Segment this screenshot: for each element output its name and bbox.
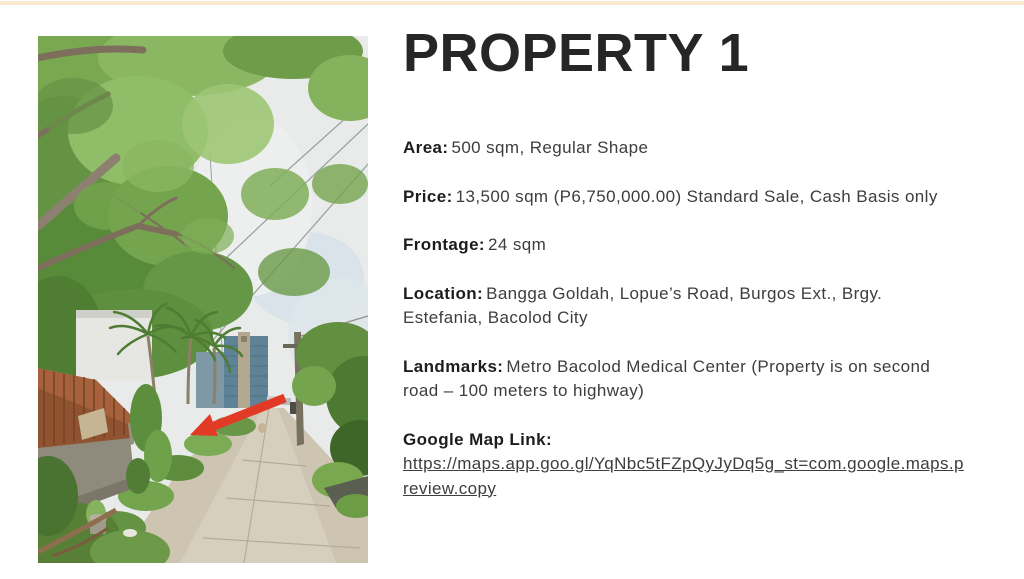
field-frontage-label: Frontage:	[403, 235, 485, 254]
field-landmarks: Landmarks:Metro Bacolod Medical Center (…	[403, 355, 965, 404]
field-area: Area:500 sqm, Regular Shape	[403, 136, 965, 161]
field-location: Location:Bangga Goldah, Lopue’s Road, Bu…	[403, 282, 965, 331]
field-google-map-link-label: Google Map Link:	[403, 428, 965, 453]
page-title: PROPERTY 1	[403, 22, 965, 84]
street-view-illustration	[38, 36, 368, 563]
field-google-map-link: Google Map Link:https://maps.app.goo.gl/…	[403, 428, 965, 502]
field-frontage: Frontage:24 sqm	[403, 233, 965, 258]
top-accent-bar	[0, 1, 1024, 5]
google-map-link[interactable]: https://maps.app.goo.gl/YqNbc5tFZpQyJyDq…	[403, 454, 964, 498]
field-location-label: Location:	[403, 284, 483, 303]
property-details: PROPERTY 1 Area:500 sqm, Regular Shape P…	[403, 22, 965, 525]
field-area-label: Area:	[403, 138, 448, 157]
white-building	[76, 310, 152, 380]
field-price-value: 13,500 sqm (P6,750,000.00) Standard Sale…	[456, 187, 938, 206]
field-landmarks-label: Landmarks:	[403, 357, 503, 376]
field-price-label: Price:	[403, 187, 453, 206]
street-view-photo	[38, 36, 368, 563]
field-price: Price:13,500 sqm (P6,750,000.00) Standar…	[403, 185, 965, 210]
field-frontage-value: 24 sqm	[488, 235, 546, 254]
field-area-value: 500 sqm, Regular Shape	[451, 138, 648, 157]
